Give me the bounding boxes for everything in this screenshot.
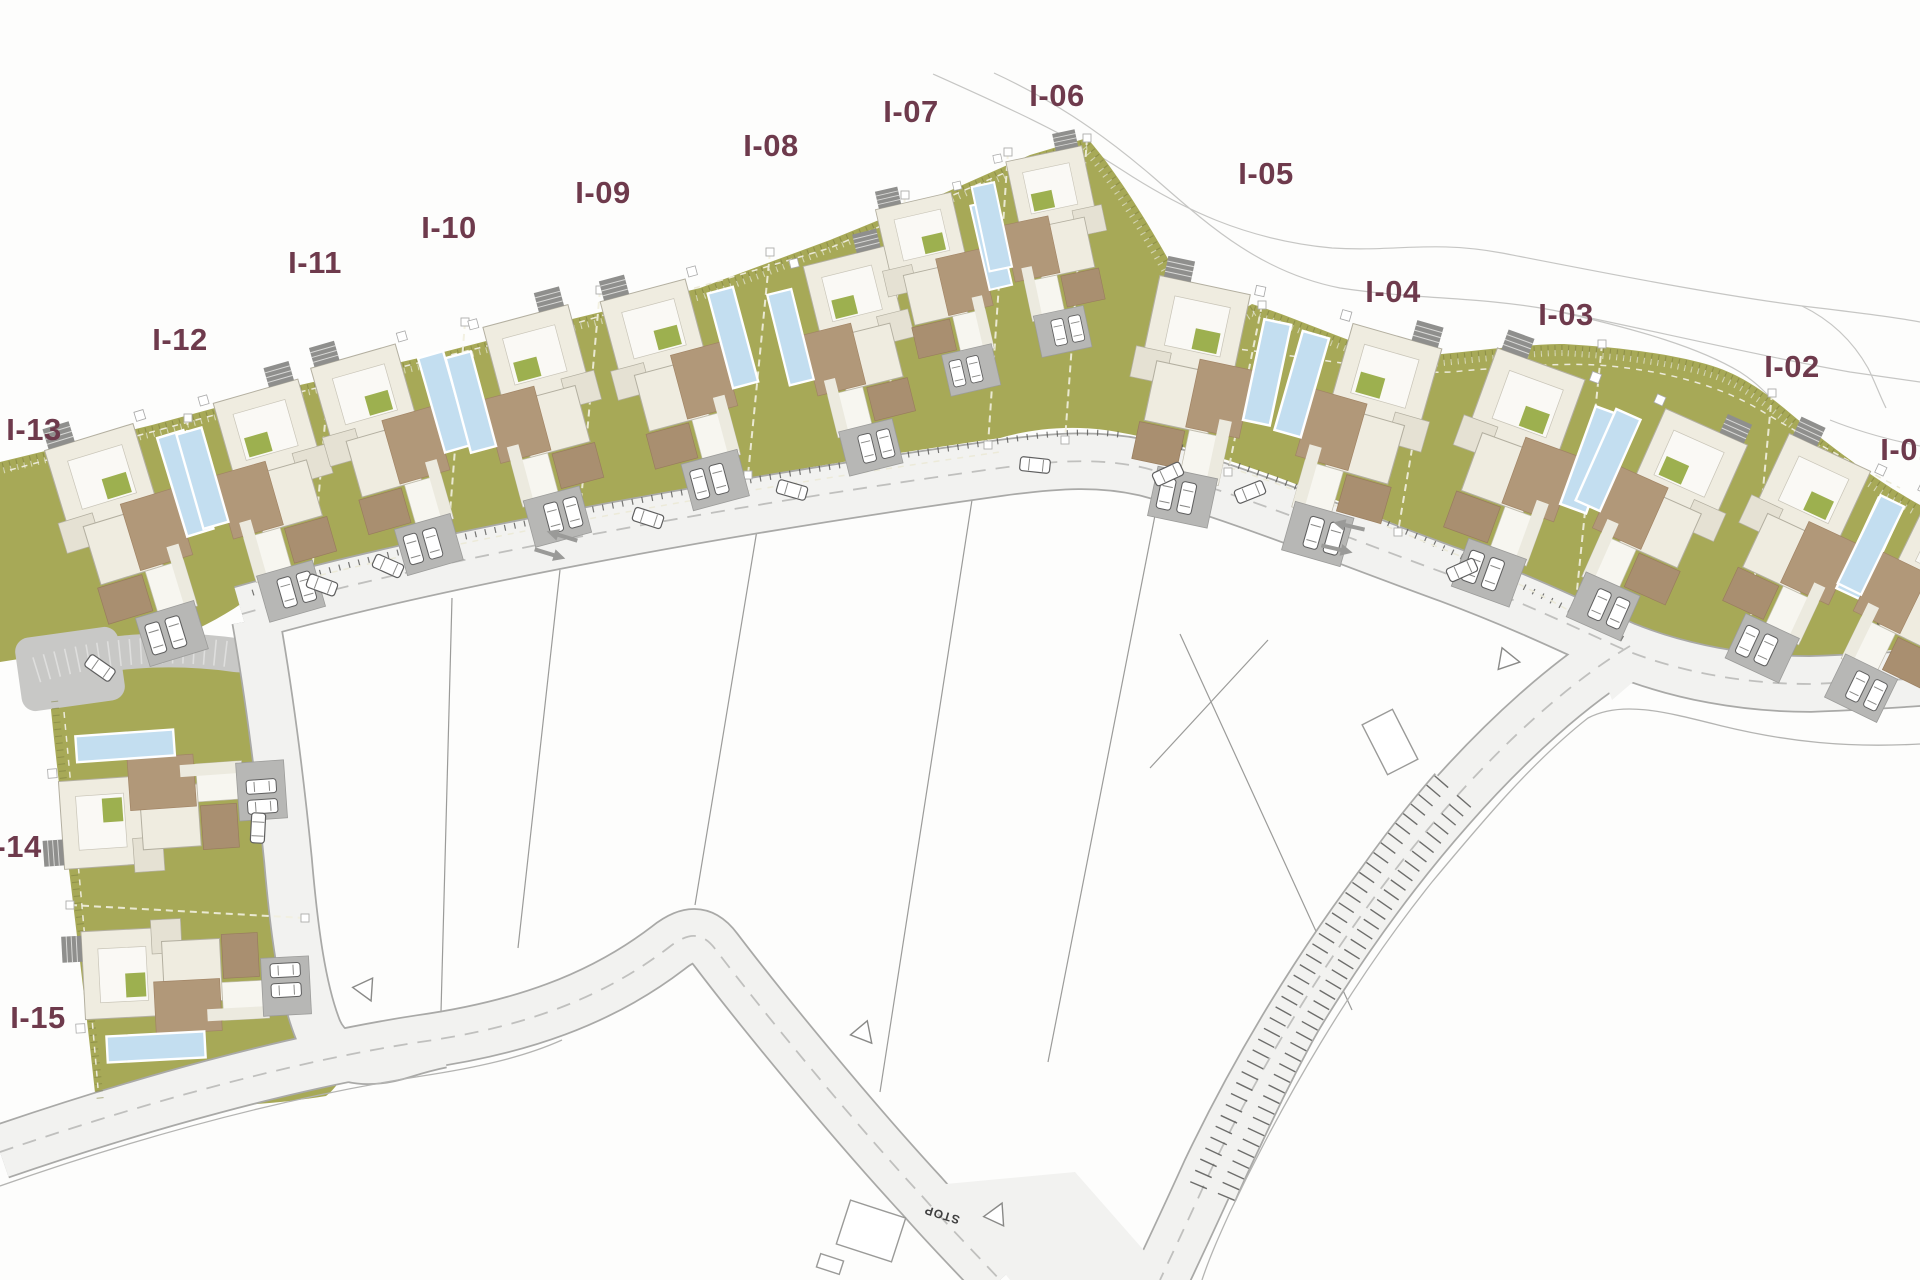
parcel-line bbox=[518, 570, 560, 948]
plot-label-I-02: I-02 bbox=[1764, 349, 1819, 384]
plot-label-I-12: I-12 bbox=[152, 322, 207, 357]
road-triangle-marking bbox=[850, 1021, 880, 1050]
plot-label-I-04: I-04 bbox=[1365, 274, 1421, 309]
plot-corner-marker bbox=[901, 191, 909, 199]
plot-corner-marker bbox=[984, 441, 992, 449]
outbuilding-outline bbox=[1362, 709, 1418, 774]
parcel-line bbox=[880, 500, 972, 1092]
plot-corner-marker bbox=[301, 914, 309, 922]
road-triangle-marking bbox=[1498, 648, 1522, 673]
outbuilding-outline bbox=[816, 1254, 843, 1275]
plot-label-I-03: I-03 bbox=[1538, 297, 1593, 332]
plot-corner-marker bbox=[1768, 389, 1776, 397]
plot-corner-marker bbox=[1061, 436, 1069, 444]
site-plan-canvas: STOP I-13I-12I-11I-10I-09I-08I-07I-06I-0… bbox=[0, 0, 1920, 1280]
plot-label-I-05: I-05 bbox=[1238, 156, 1293, 191]
plot-label-I-11: I-11 bbox=[288, 245, 342, 280]
plot-label-I-09: I-09 bbox=[575, 175, 630, 210]
plot-corner-marker bbox=[66, 901, 74, 909]
plot-label-I-15: I-15 bbox=[10, 1000, 65, 1035]
parcel-line bbox=[441, 598, 452, 1012]
plot-label-I-01: I-01 bbox=[1880, 432, 1920, 467]
road-triangle-marking bbox=[353, 978, 381, 1005]
parcel-line bbox=[1048, 500, 1158, 1062]
plot-corner-marker bbox=[1004, 148, 1012, 156]
car bbox=[1019, 456, 1050, 473]
plot-label-I-13: I-13 bbox=[6, 412, 61, 447]
plot-label-I-07: I-07 bbox=[883, 94, 938, 129]
plot-corner-marker bbox=[744, 471, 752, 479]
plot-corner-marker bbox=[1083, 134, 1091, 142]
plot-label-I-08: I-08 bbox=[743, 128, 798, 163]
outbuilding-outline bbox=[836, 1200, 905, 1262]
parcel-line bbox=[1150, 640, 1268, 768]
plot-label-I-06: I-06 bbox=[1029, 78, 1084, 113]
plot-label-I-10: I-10 bbox=[421, 210, 476, 245]
plot-corner-marker bbox=[184, 414, 192, 422]
plot-corner-marker bbox=[1224, 468, 1232, 476]
plot-label-I-14: I-14 bbox=[0, 829, 42, 864]
parcel-line bbox=[695, 524, 758, 905]
plot-corner-marker bbox=[1598, 340, 1606, 348]
plot-corner-marker bbox=[1394, 528, 1402, 536]
car bbox=[250, 813, 266, 844]
plot-corner-marker bbox=[1258, 301, 1266, 309]
plot-corner-marker bbox=[766, 248, 774, 256]
